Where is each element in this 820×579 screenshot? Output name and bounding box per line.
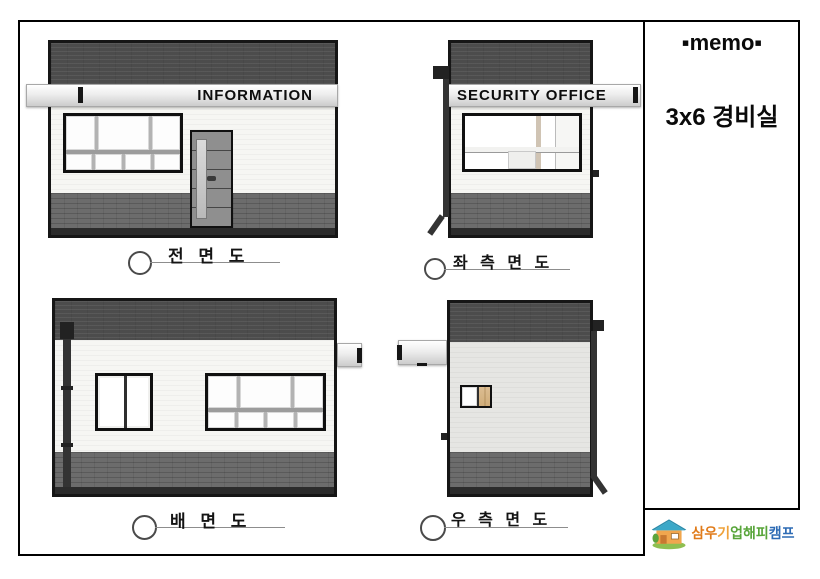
- entrance-door: [190, 130, 233, 228]
- window-pane: [66, 116, 95, 150]
- door-glass-strip: [196, 139, 207, 219]
- right-wainscot-band: [450, 452, 590, 487]
- information-sign-band: INFORMATION: [26, 84, 338, 107]
- left-base-slab: [451, 228, 590, 235]
- label-marker-circle: [132, 515, 157, 540]
- window-pane: [238, 412, 265, 428]
- company-logo-icon: [650, 517, 688, 550]
- window-pane: [297, 412, 324, 428]
- rear-wood-window: [95, 373, 153, 431]
- gutter-head: [60, 322, 74, 339]
- window-pane: [267, 412, 294, 428]
- drawing-sheet: INFORMATION 전 면 도 SECURITY OFFICE 좌 측 면 …: [0, 0, 820, 579]
- small-side-window: [460, 385, 492, 408]
- rear-wainscot-band: [55, 452, 334, 487]
- company-logo-text: 삼우기업해피캠프: [691, 523, 794, 543]
- door-handle: [207, 176, 216, 181]
- window-pane: [208, 376, 237, 408]
- downspout-pipe: [63, 339, 71, 487]
- left-parapet-band: [451, 43, 590, 84]
- rear-elevation-building: [52, 298, 337, 497]
- company-logo-box: 삼우기업해피캠프: [645, 508, 800, 556]
- window-pane: [462, 387, 477, 406]
- sign-band-edge-right: [398, 340, 447, 365]
- interior-sill-panel: [508, 151, 535, 169]
- right-parapet-band: [450, 303, 590, 342]
- label-marker-circle: [128, 251, 152, 275]
- rear-view-label: 배 면 도: [170, 507, 251, 532]
- security-office-sign-text: SECURITY OFFICE: [457, 87, 607, 104]
- rear-window-lower-sash: [208, 412, 323, 428]
- window-pane: [294, 376, 323, 408]
- front-window-upper-sash: [66, 116, 180, 154]
- interior-white-wall: [555, 116, 579, 169]
- left-wainscot-band: [451, 193, 590, 228]
- front-base-slab: [51, 228, 335, 235]
- memo-header: ▪memo▪: [645, 30, 799, 56]
- information-sign-text: INFORMATION: [197, 87, 313, 104]
- rear-base-slab: [55, 487, 334, 494]
- right-elevation-building: [447, 300, 593, 497]
- sign-bracket-tick: [397, 345, 402, 360]
- front-window-lower-sash: [66, 154, 180, 170]
- front-elevation-building: [48, 40, 338, 238]
- window-pane: [154, 154, 180, 170]
- sign-bracket-tick: [633, 87, 638, 103]
- pipe-collar: [61, 386, 73, 390]
- window-pane: [240, 376, 292, 408]
- window-pane: [98, 116, 149, 150]
- rear-window: [205, 373, 326, 431]
- sign-bracket-tick: [78, 87, 83, 103]
- gutter-head: [593, 320, 604, 331]
- window-center-divider: [477, 387, 479, 406]
- left-elevation-building: [448, 40, 593, 238]
- window-pane: [95, 154, 121, 170]
- right-view-label: 우 측 면 도: [451, 506, 551, 530]
- right-base-slab: [450, 487, 590, 494]
- interior-wood-post: [536, 116, 542, 169]
- pipe-collar: [61, 443, 73, 447]
- label-marker-circle: [420, 515, 446, 541]
- front-view-label: 전 면 도: [168, 242, 249, 267]
- project-title: 3x6 경비실: [645, 97, 799, 132]
- sign-mount-mark: [417, 363, 427, 366]
- downspout-pipe: [591, 331, 597, 477]
- downspout-pipe: [443, 79, 449, 217]
- window-pane: [125, 154, 151, 170]
- side-window-interior-view: [462, 113, 582, 172]
- rear-parapet-band: [55, 301, 334, 340]
- window-pane: [152, 116, 181, 150]
- window-center-divider: [124, 376, 127, 428]
- front-window: [63, 113, 183, 173]
- wall-bracket: [593, 170, 599, 177]
- front-parapet-band: [51, 43, 335, 84]
- gutter-head: [433, 66, 449, 79]
- security-office-sign-band: SECURITY OFFICE: [448, 84, 641, 107]
- sign-bracket-tick: [357, 348, 362, 363]
- window-pane: [66, 154, 92, 170]
- left-view-label: 좌 측 면 도: [453, 249, 553, 273]
- sign-band-edge-rear: [337, 343, 362, 367]
- wall-bracket: [441, 433, 447, 440]
- window-pane: [208, 412, 235, 428]
- label-marker-circle: [424, 258, 446, 280]
- rear-window-upper-sash: [208, 376, 323, 412]
